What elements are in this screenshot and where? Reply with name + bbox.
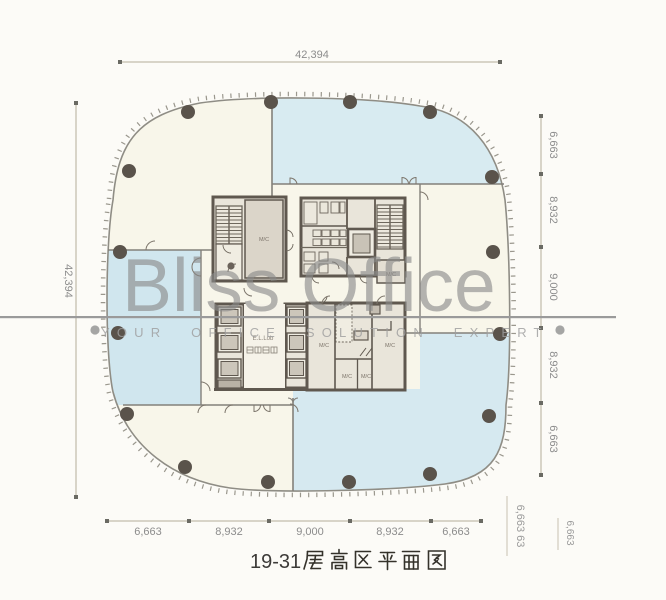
svg-text:42,394: 42,394 [295, 49, 329, 61]
svg-text:42,394: 42,394 [62, 264, 74, 298]
svg-text:6,663: 6,663 [134, 526, 162, 538]
svg-text:6,663 63: 6,663 63 [514, 505, 526, 548]
svg-text:M/C: M/C [319, 343, 329, 349]
svg-text:9,000: 9,000 [296, 526, 324, 538]
svg-text:19-31: 19-31 [250, 551, 301, 573]
svg-text:8,932: 8,932 [547, 196, 559, 224]
svg-text:Bliss Office: Bliss Office [122, 243, 496, 327]
svg-text:M/C: M/C [385, 343, 395, 349]
svg-text:6,663: 6,663 [442, 526, 470, 538]
svg-text:9,000: 9,000 [547, 273, 559, 301]
svg-text:6,663: 6,663 [547, 131, 559, 159]
svg-text:YOUR OFFICE SOLUTION EXPERT: YOUR OFFICE SOLUTION EXPERT [101, 325, 549, 340]
svg-text:6,663: 6,663 [547, 425, 559, 453]
svg-text:M/C: M/C [361, 374, 371, 380]
svg-text:6,663: 6,663 [564, 520, 575, 545]
svg-text:8,932: 8,932 [547, 351, 559, 379]
svg-text:8,932: 8,932 [215, 526, 243, 538]
svg-text:8,932: 8,932 [376, 526, 404, 538]
svg-text:M/C: M/C [342, 374, 352, 380]
